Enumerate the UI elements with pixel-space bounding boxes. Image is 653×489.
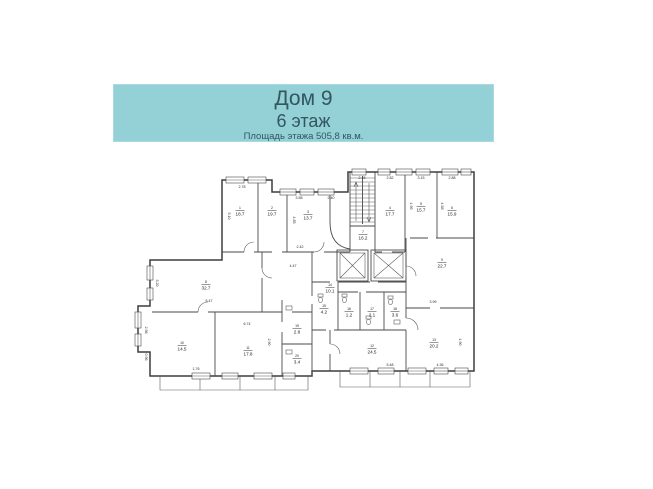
svg-text:2: 2	[271, 206, 273, 210]
room-label: 161.2	[345, 307, 354, 318]
dimension-label: 0.96	[144, 354, 148, 361]
dimension-label: 3.15	[418, 176, 425, 180]
svg-text:4: 4	[389, 206, 391, 210]
svg-text:1.2: 1.2	[346, 313, 353, 318]
svg-text:19: 19	[295, 324, 299, 328]
room-label: 1224.5	[368, 344, 377, 355]
svg-text:9: 9	[441, 258, 443, 262]
room-label: 192.8	[293, 324, 302, 335]
svg-text:8: 8	[205, 280, 207, 284]
svg-text:4.2: 4.2	[321, 310, 328, 315]
svg-text:22.7: 22.7	[438, 264, 447, 269]
dimension-label: 3.99	[430, 300, 437, 304]
svg-text:16.2: 16.2	[359, 236, 368, 241]
dimension-label: 2.40	[328, 196, 335, 200]
dimension-label: 5.10	[227, 213, 231, 220]
room-label: 219.7	[268, 206, 277, 217]
svg-text:17.8: 17.8	[244, 352, 253, 357]
svg-text:18: 18	[393, 307, 397, 311]
dimension-label: 5.48	[387, 363, 394, 367]
room-label: 615.9	[448, 206, 457, 217]
room-label: 1014.5	[178, 341, 187, 352]
room-label: 203.4	[293, 354, 302, 365]
svg-text:14.5: 14.5	[178, 347, 187, 352]
dimension-label: 4.95	[409, 203, 413, 210]
svg-text:3.4: 3.4	[294, 360, 301, 365]
dimension-label: 4.36	[437, 363, 444, 367]
room-label: 154.2	[320, 304, 329, 315]
dimension-label: 1.76	[193, 367, 200, 371]
svg-text:15: 15	[322, 304, 326, 308]
elevator-shafts	[337, 250, 406, 281]
door-arcs	[198, 242, 418, 354]
svg-text:13: 13	[432, 338, 436, 342]
room-label: 417.7	[386, 206, 395, 217]
room-label: 183.6	[391, 307, 400, 318]
svg-text:19.7: 19.7	[268, 212, 277, 217]
room-label: 515.7	[417, 202, 426, 213]
svg-text:13.7: 13.7	[304, 216, 313, 221]
room-label: 118.7	[236, 206, 245, 217]
plan-labels: 118.7219.7313.7417.7515.7615.9716.2832.7…	[144, 176, 462, 371]
svg-text:14: 14	[328, 283, 332, 287]
dimension-label: 2.45	[359, 176, 366, 180]
dimension-label: 4.90	[458, 339, 462, 346]
room-label: 172.1	[368, 307, 377, 318]
room-label: 922.7	[438, 258, 447, 269]
outer-walls	[138, 172, 474, 376]
room-label: 1117.8	[244, 346, 253, 357]
dimension-label: 2.78	[239, 185, 246, 189]
svg-text:18.7: 18.7	[236, 212, 245, 217]
dimension-label: 4.85	[292, 217, 296, 224]
svg-text:17.7: 17.7	[386, 212, 395, 217]
room-label: 716.2	[359, 230, 368, 241]
svg-text:32.7: 32.7	[202, 286, 211, 291]
room-label: 1410.1	[326, 283, 335, 294]
dimension-label: 4.58	[440, 203, 444, 210]
svg-text:2.1: 2.1	[369, 313, 376, 318]
svg-text:20.2: 20.2	[430, 344, 439, 349]
room-label: 313.7	[304, 210, 313, 221]
dimension-label: 2.98	[144, 327, 148, 334]
dimension-label: 2.82	[387, 176, 394, 180]
dimension-label: 6.47	[206, 299, 213, 303]
svg-text:15.7: 15.7	[417, 208, 426, 213]
bathroom-fixtures	[286, 294, 400, 354]
svg-text:10.1: 10.1	[326, 289, 335, 294]
svg-text:15.9: 15.9	[448, 212, 457, 217]
dimension-label: 3.58	[296, 196, 303, 200]
svg-text:16: 16	[347, 307, 351, 311]
room-label: 832.7	[202, 280, 211, 291]
svg-text:20: 20	[295, 354, 299, 358]
dimension-label: 2.90	[267, 339, 271, 346]
staircase	[350, 176, 375, 226]
svg-text:24.5: 24.5	[368, 350, 377, 355]
dimension-label: 2.42	[297, 245, 304, 249]
dimension-label: 3.20	[155, 280, 159, 287]
svg-text:12: 12	[370, 344, 374, 348]
dimension-label: 4.47	[290, 264, 297, 268]
dimension-label: 6.74	[244, 322, 251, 326]
dimension-label: 2.88	[449, 176, 456, 180]
floor-plan-drawing: 118.7219.7313.7417.7515.7615.9716.2832.7…	[0, 0, 653, 489]
svg-text:3.6: 3.6	[392, 313, 399, 318]
svg-text:5: 5	[420, 202, 422, 206]
svg-text:11: 11	[246, 346, 250, 350]
svg-text:10: 10	[180, 341, 184, 345]
svg-text:6: 6	[451, 206, 453, 210]
svg-text:1: 1	[239, 206, 241, 210]
svg-text:3: 3	[307, 210, 309, 214]
room-label: 1320.2	[430, 338, 439, 349]
svg-text:2.8: 2.8	[294, 330, 301, 335]
svg-text:7: 7	[362, 230, 364, 234]
svg-text:17: 17	[370, 307, 374, 311]
floor-plan-page: Дом 9 6 этаж Площадь этажа 505,8 кв.м.	[0, 0, 653, 489]
interior-walls	[152, 172, 474, 376]
